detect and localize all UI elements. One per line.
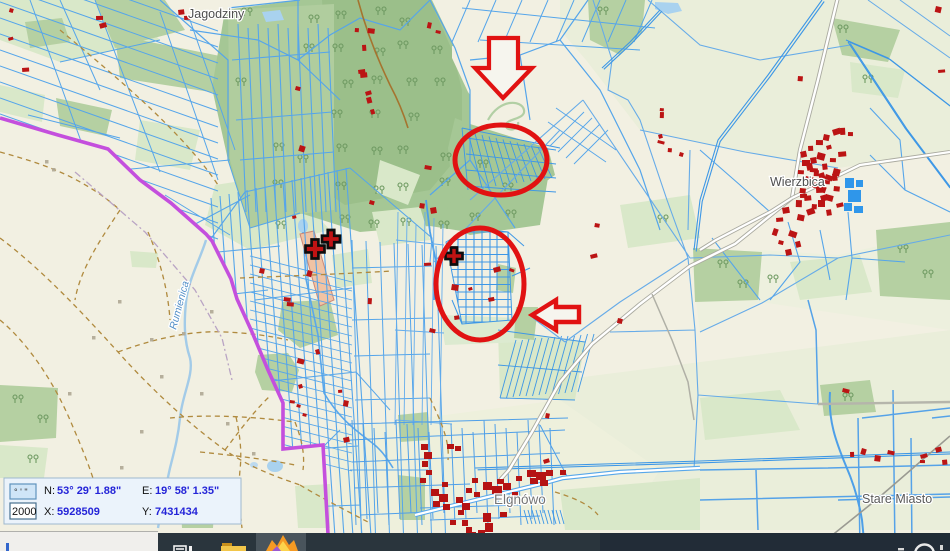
svg-text:N:: N:	[44, 485, 55, 497]
svg-text:2000: 2000	[12, 506, 36, 518]
svg-text:53° 29' 1.88": 53° 29' 1.88"	[57, 485, 121, 497]
svg-text:Stare Miasto: Stare Miasto	[862, 492, 932, 506]
svg-text:Elgnówo: Elgnówo	[494, 492, 546, 507]
svg-text:19° 58' 1.35": 19° 58' 1.35"	[155, 485, 219, 497]
svg-text:Y:: Y:	[142, 506, 152, 518]
svg-text:Wierzbica: Wierzbica	[770, 175, 825, 189]
svg-text:E:: E:	[142, 485, 152, 497]
svg-text:7431434: 7431434	[155, 506, 199, 518]
svg-text:Jagodziny: Jagodziny	[188, 7, 245, 21]
svg-text:5928509: 5928509	[57, 506, 100, 518]
svg-text:° ' ": ° ' "	[14, 487, 28, 497]
svg-text:X:: X:	[44, 506, 54, 518]
